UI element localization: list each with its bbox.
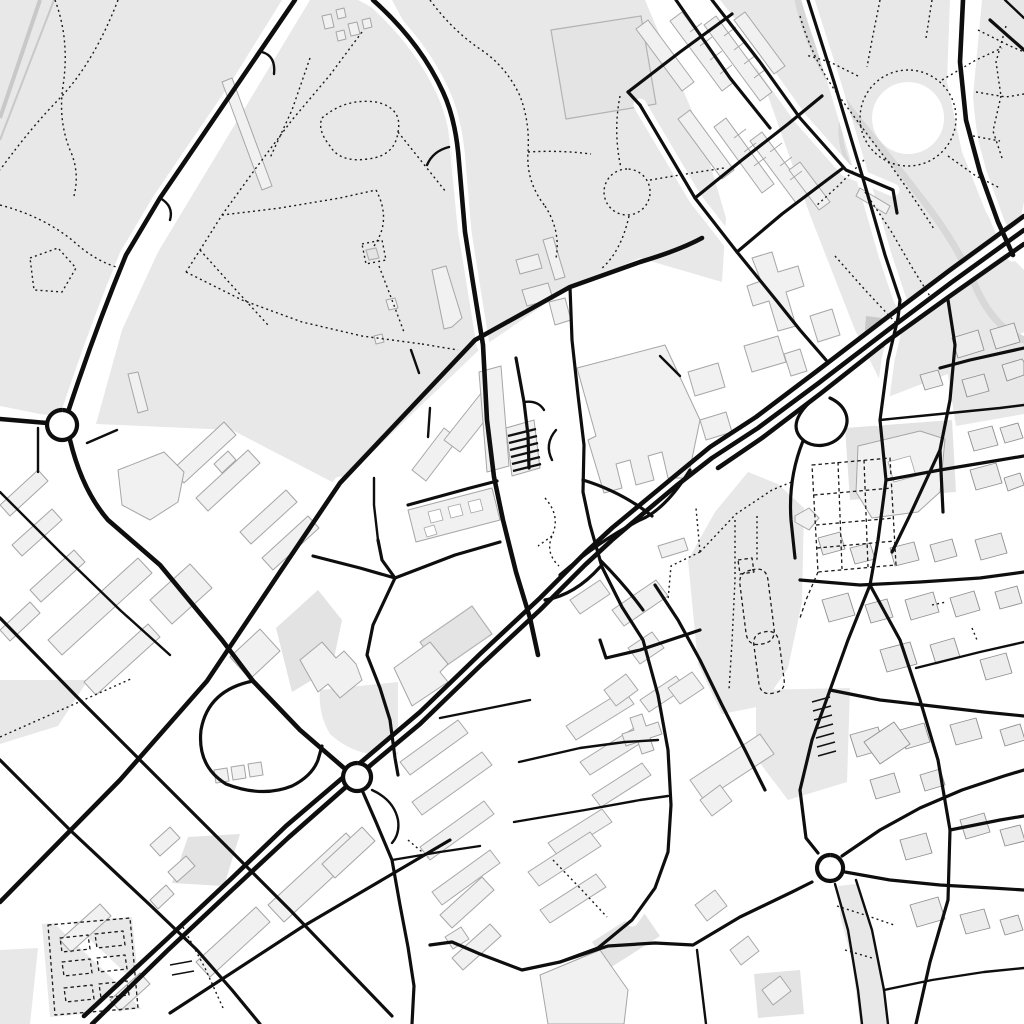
layer-pond — [872, 82, 944, 154]
layer-plaza-steps — [170, 697, 836, 975]
map-canvas — [0, 0, 1024, 1024]
street-map — [0, 0, 1024, 1024]
